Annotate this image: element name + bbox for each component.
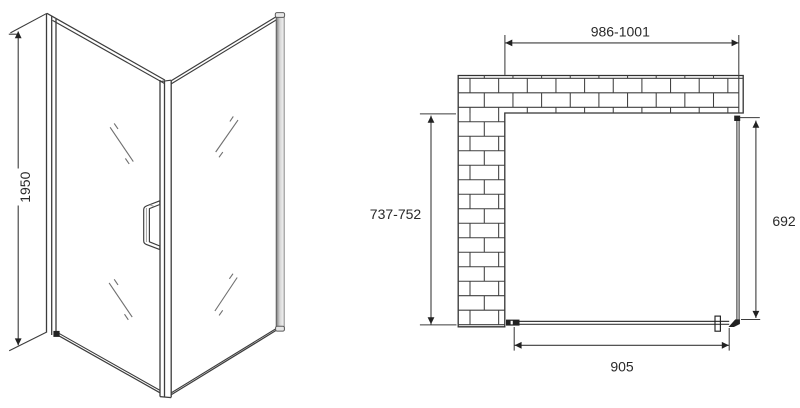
svg-text:905: 905 <box>610 359 634 375</box>
svg-text:737-752: 737-752 <box>370 206 422 222</box>
svg-text:986-1001: 986-1001 <box>591 24 650 40</box>
svg-text:692: 692 <box>772 213 796 229</box>
svg-text:1950: 1950 <box>17 171 33 202</box>
